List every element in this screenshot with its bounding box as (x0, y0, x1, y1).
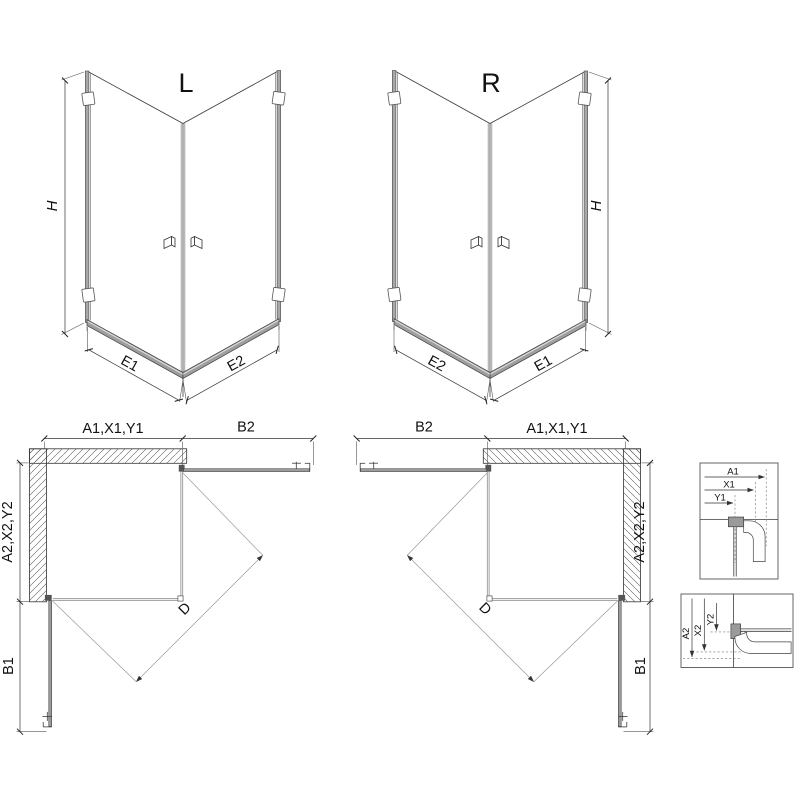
detail-x1-label: X1 (723, 480, 735, 491)
width-dim-label: A1,X1,Y1 (82, 421, 143, 437)
detail-box-top: A1 X1 Y1 (700, 463, 778, 579)
technical-drawing-page: L H E1 E2 R H E2 E1 A1,X1,Y1 B2 A2,X2,Y2… (0, 0, 800, 800)
shower-enclosure-diagram: L H E1 E2 R H E2 E1 A1,X1,Y1 B2 A2,X2,Y2… (0, 0, 800, 800)
e2-dim-label: E2 (425, 353, 448, 376)
view-left-label: L (178, 68, 193, 98)
detail-y1-label: Y1 (714, 493, 726, 504)
side-door-dim-label: B1 (1, 657, 17, 675)
view-right-label: R (481, 68, 501, 98)
glass-clamp-profile (728, 517, 743, 527)
detail-y2-label: Y2 (705, 614, 716, 626)
iso-view-left: L H E1 E2 (44, 68, 285, 404)
plan-view-left: A1,X1,Y1 B2 A2,X2,Y2 B1 D (0, 420, 316, 735)
diagonal-dim-label: D (176, 600, 195, 619)
plan-view-right: B2 A1,X1,Y1 A2,X2,Y2 B1 D (354, 420, 654, 735)
door-dim-label: B2 (237, 420, 255, 436)
detail-a1-label: A1 (727, 467, 739, 478)
detail-box-bottom: A2 X2 Y2 (681, 594, 793, 668)
width-dim-label: A1,X1,Y1 (526, 421, 587, 437)
height-dim-label: H (588, 200, 605, 211)
detail-x2-label: X2 (693, 625, 704, 637)
depth-dim-label: A2,X2,Y2 (632, 501, 648, 562)
door-dim-label: B2 (415, 420, 433, 436)
iso-view-right: R H E2 E1 (388, 68, 612, 404)
depth-dim-label: A2,X2,Y2 (0, 501, 16, 562)
e1-dim-label: E1 (118, 353, 141, 376)
diagonal-dim-label: D (475, 600, 494, 619)
detail-a2-label: A2 (681, 628, 692, 640)
e2-dim-label: E2 (225, 353, 248, 376)
e1-dim-label: E1 (532, 353, 555, 376)
side-door-dim-label: B1 (633, 657, 649, 675)
height-dim-label: H (44, 200, 61, 211)
